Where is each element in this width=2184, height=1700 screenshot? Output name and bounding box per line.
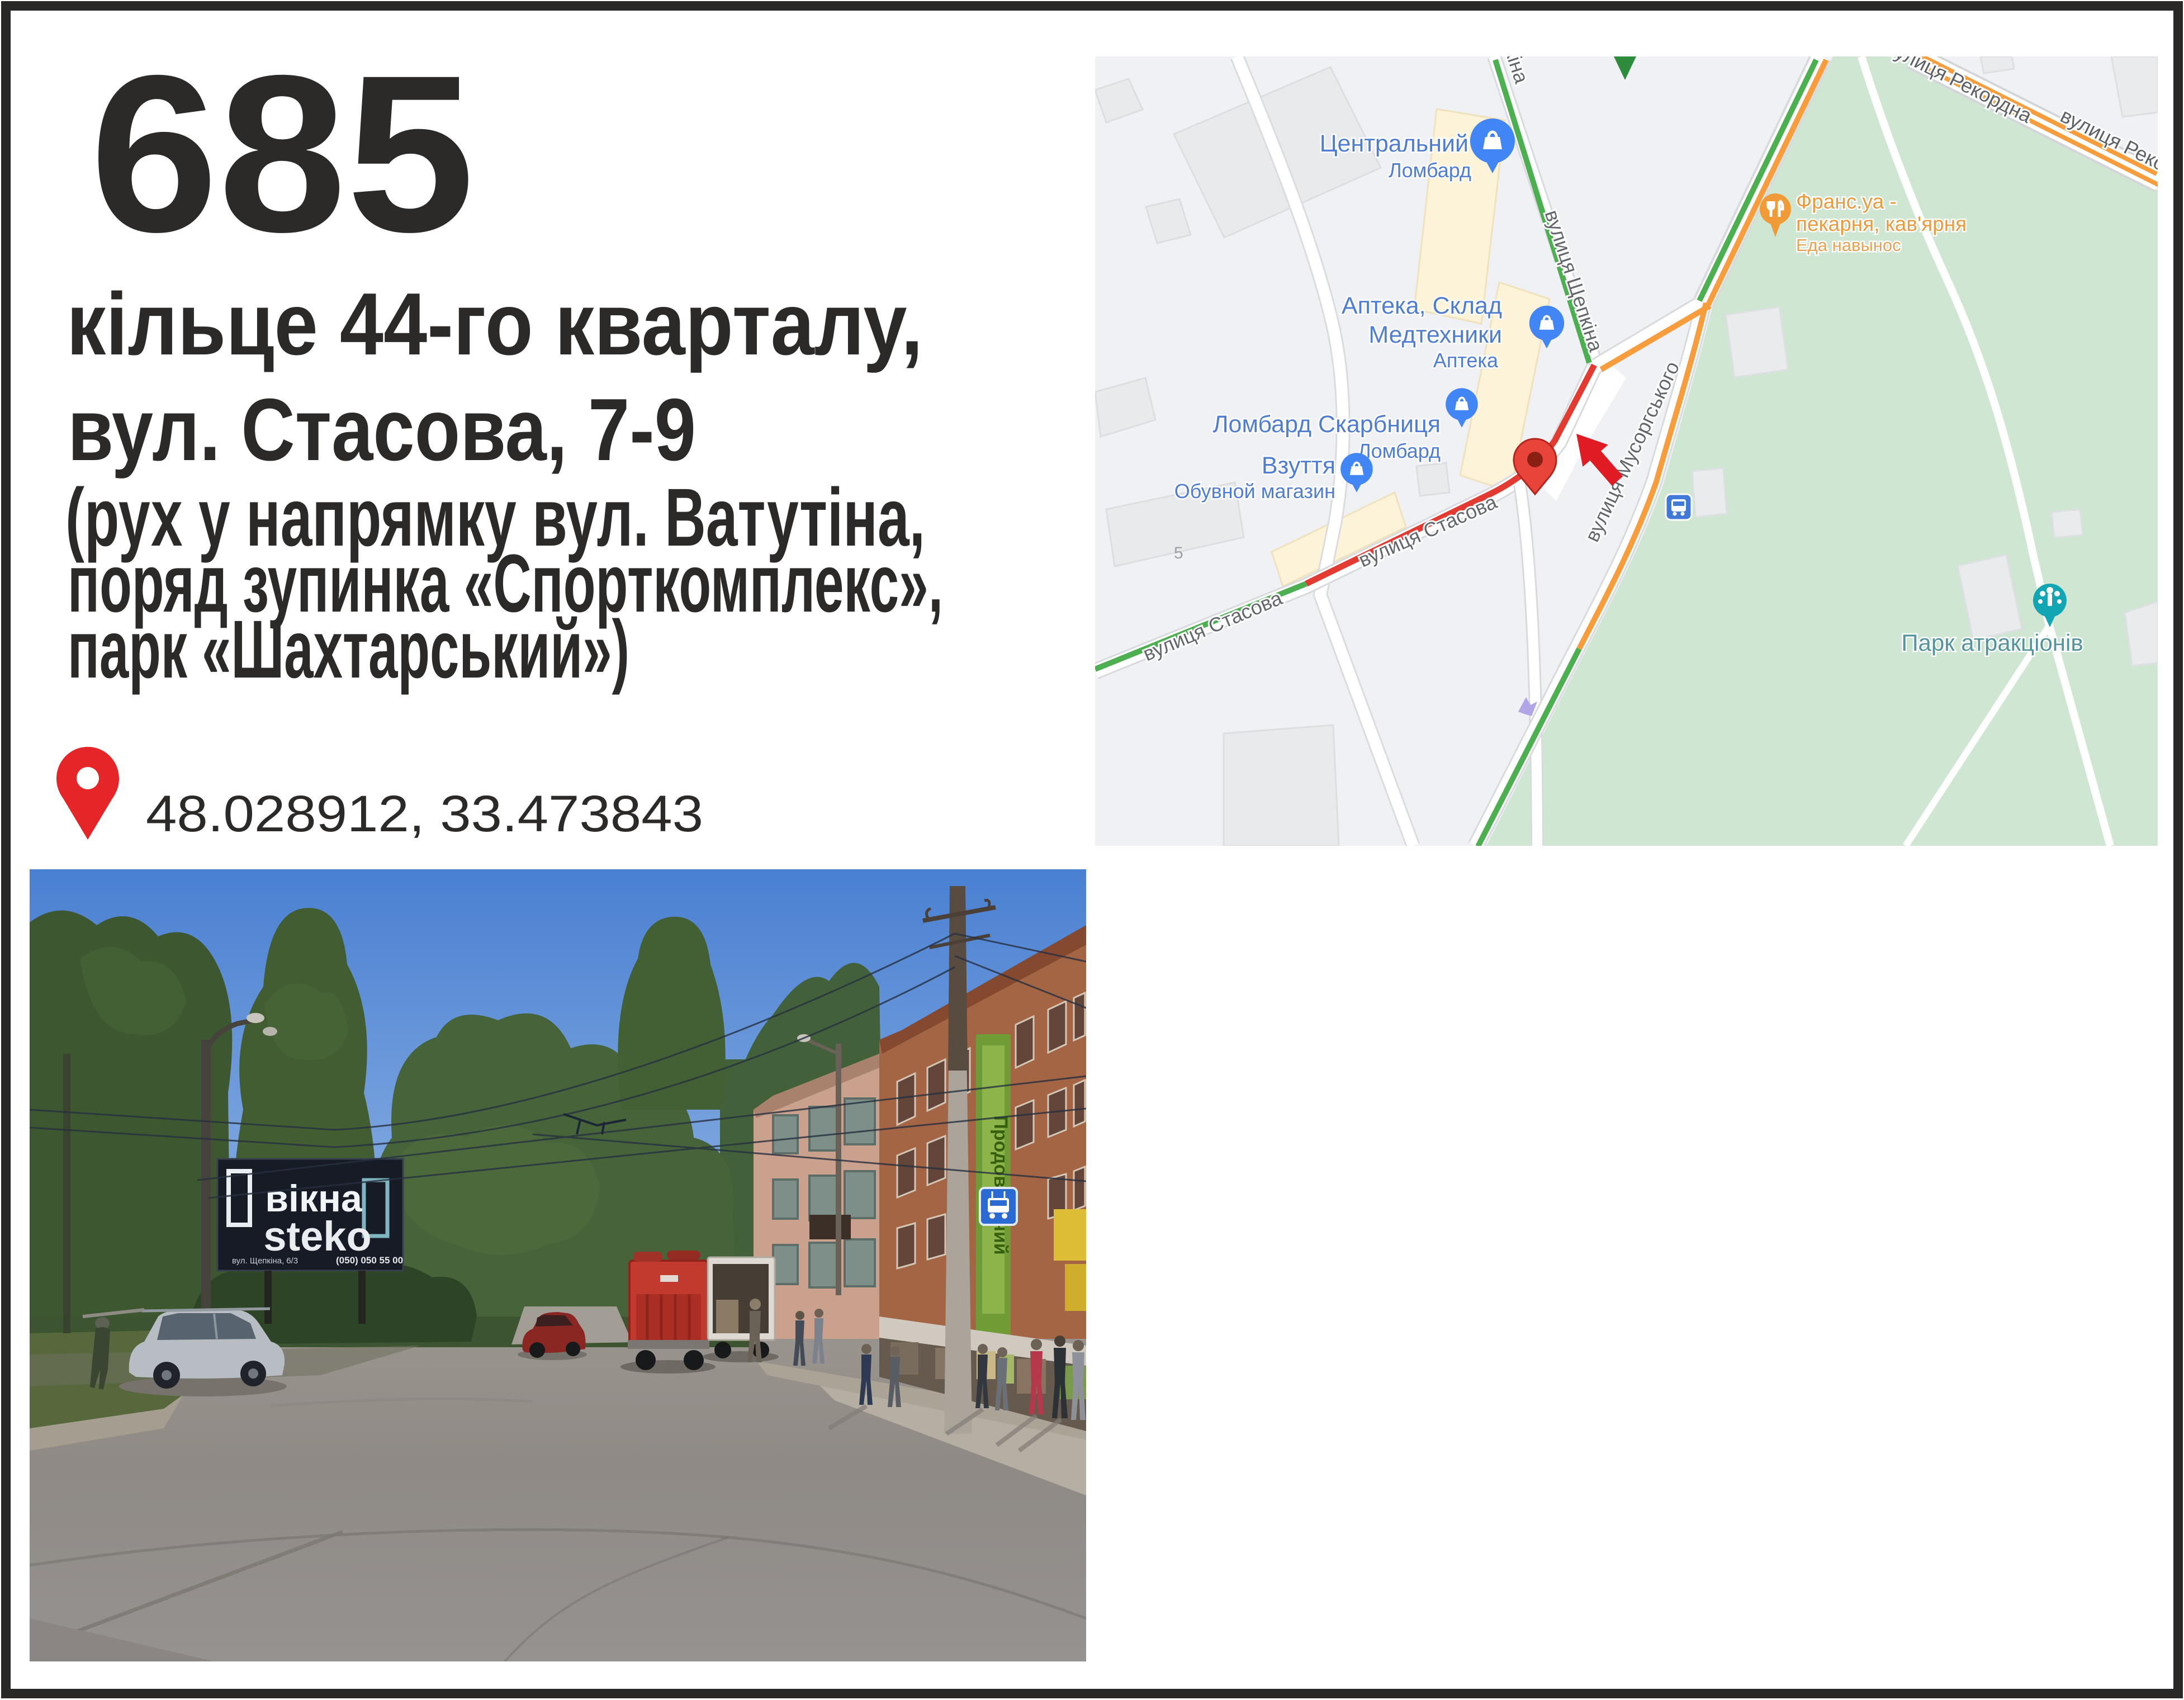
svg-text:вул. Щепкіна, 6/3: вул. Щепкіна, 6/3 [232,1256,298,1266]
svg-text:кільце 44-го кварталу,: кільце 44-го кварталу, [67,275,923,373]
svg-text:Ломбард: Ломбард [1358,439,1441,462]
svg-text:Взуття: Взуття [1262,452,1335,479]
svg-text:Франс.уа -: Франс.уа - [1796,190,1897,213]
svg-text:Парк атракціонів: Парк атракціонів [1901,629,2083,656]
svg-text:Аптека, Склад: Аптека, Склад [1342,292,1502,319]
svg-text:Продовольчий: Продовольчий [990,1115,1011,1254]
svg-text:5: 5 [1174,544,1183,562]
svg-text:Центральний: Центральний [1320,130,1468,157]
svg-text:Еда навынос: Еда навынос [1796,235,1901,255]
svg-text:steko: steko [263,1213,371,1259]
svg-text:48.028912, 33.473843: 48.028912, 33.473843 [146,785,703,842]
svg-text:Ломбард Скарбниця: Ломбард Скарбниця [1212,411,1441,438]
svg-text:685: 685 [90,29,475,278]
svg-text:Аптека: Аптека [1433,349,1499,372]
svg-text:Ломбард: Ломбард [1389,159,1471,182]
svg-text:пекарня, кав'ярня: пекарня, кав'ярня [1796,212,1967,235]
svg-text:(050) 050 55 00: (050) 050 55 00 [336,1255,403,1266]
svg-text:вул. Стасова, 7-9: вул. Стасова, 7-9 [68,381,696,479]
svg-text:Обувной магазин: Обувной магазин [1174,480,1335,503]
svg-text:Медтехники: Медтехники [1368,321,1502,348]
svg-text:парк «Шахтарський»): парк «Шахтарський») [68,604,629,695]
